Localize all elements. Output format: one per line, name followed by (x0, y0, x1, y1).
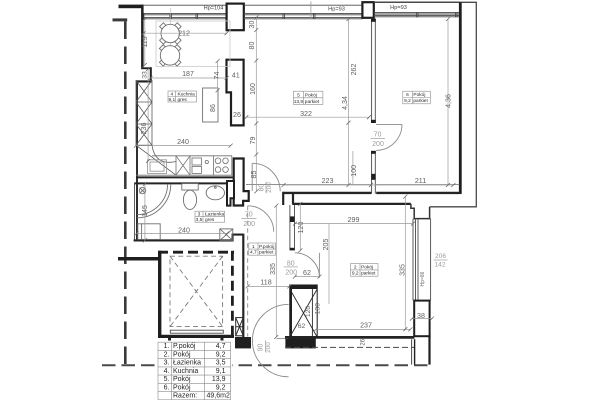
svg-text:5: 5 (297, 93, 300, 99)
svg-text:4: 4 (170, 91, 173, 97)
svg-text:85: 85 (250, 171, 258, 179)
svg-text:200: 200 (266, 182, 273, 193)
svg-text:236: 236 (140, 123, 148, 135)
svg-text:parkiet: parkiet (413, 98, 428, 104)
svg-text:Pokój: Pokój (173, 352, 191, 359)
svg-text:118: 118 (260, 279, 271, 287)
svg-text:240: 240 (178, 226, 190, 234)
svg-text:3,5: 3,5 (196, 217, 203, 223)
svg-text:70: 70 (245, 211, 253, 218)
svg-text:5.: 5. (164, 376, 170, 383)
svg-text:4,7: 4,7 (250, 250, 257, 256)
svg-text:Kuchnia: Kuchnia (173, 368, 198, 375)
svg-text:4,34: 4,34 (341, 96, 349, 110)
svg-text:322: 322 (300, 110, 312, 118)
svg-text:Hp=93: Hp=93 (328, 6, 345, 12)
svg-text:9,2: 9,2 (352, 271, 359, 277)
svg-text:Hp=93: Hp=93 (390, 5, 407, 11)
svg-text:13,9: 13,9 (294, 99, 304, 105)
svg-text:9,1: 9,1 (216, 368, 226, 375)
svg-text:335: 335 (269, 263, 277, 275)
svg-text:62: 62 (298, 323, 306, 330)
svg-text:212: 212 (178, 29, 190, 37)
svg-text:Hp=86: Hp=86 (420, 271, 426, 286)
svg-text:9,2: 9,2 (216, 384, 226, 391)
svg-text:gres: gres (178, 97, 188, 103)
svg-text:Pokój: Pokój (173, 384, 191, 391)
svg-text:299: 299 (348, 216, 360, 224)
svg-text:38: 38 (417, 312, 425, 320)
svg-text:3.: 3. (164, 360, 170, 367)
svg-text:86: 86 (208, 104, 217, 112)
svg-text:P.pokój: P.pokój (259, 244, 274, 250)
svg-text:187: 187 (182, 70, 194, 78)
svg-text:200: 200 (285, 269, 297, 276)
svg-text:49,6m2: 49,6m2 (207, 393, 230, 400)
svg-text:4,7: 4,7 (216, 343, 226, 350)
svg-text:Kuchnia: Kuchnia (178, 91, 196, 97)
svg-text:Pokój: Pokój (361, 265, 373, 271)
svg-text:Pokój: Pokój (413, 92, 425, 98)
svg-text:1: 1 (252, 244, 255, 250)
svg-text:70: 70 (374, 131, 382, 138)
svg-text:33: 33 (142, 71, 149, 79)
svg-text:parkiet: parkiet (305, 99, 320, 105)
svg-text:200: 200 (243, 221, 255, 228)
svg-text:41: 41 (232, 71, 240, 80)
svg-text:3: 3 (198, 212, 201, 218)
svg-text:13,9: 13,9 (212, 376, 226, 383)
svg-text:240: 240 (177, 138, 189, 146)
svg-text:2.: 2. (164, 352, 170, 359)
svg-text:Pokój: Pokój (305, 93, 317, 99)
svg-text:80: 80 (248, 42, 256, 50)
svg-text:205: 205 (322, 239, 330, 251)
svg-text:145: 145 (141, 205, 149, 217)
svg-text:Pokój: Pokój (173, 376, 191, 383)
svg-text:Razem:: Razem: (173, 393, 197, 400)
svg-text:79: 79 (249, 137, 257, 145)
svg-text:P.pokój: P.pokój (173, 343, 196, 350)
svg-text:142: 142 (434, 261, 445, 268)
svg-text:237: 237 (360, 322, 372, 330)
svg-text:Łazienka: Łazienka (205, 212, 225, 218)
svg-text:62: 62 (303, 269, 311, 277)
svg-text:262: 262 (350, 64, 358, 76)
svg-text:26: 26 (361, 338, 367, 345)
svg-text:2: 2 (354, 265, 357, 271)
svg-text:206: 206 (435, 253, 446, 260)
svg-text:120: 120 (297, 222, 305, 234)
svg-text:130: 130 (315, 303, 322, 315)
svg-text:1.: 1. (164, 343, 170, 350)
svg-text:4.: 4. (164, 368, 170, 375)
svg-text:100: 100 (350, 165, 358, 177)
svg-text:6: 6 (406, 92, 409, 98)
svg-text:80: 80 (287, 260, 295, 267)
svg-text:3,5: 3,5 (216, 360, 226, 367)
svg-text:200: 200 (265, 342, 272, 353)
svg-text:6.: 6. (164, 384, 170, 391)
svg-text:9,2: 9,2 (404, 98, 411, 104)
svg-text:211: 211 (415, 177, 426, 185)
svg-text:223: 223 (322, 177, 334, 185)
svg-text:200: 200 (372, 141, 384, 148)
svg-text:4,36: 4,36 (444, 94, 452, 108)
svg-text:Hp=104: Hp=104 (204, 6, 224, 12)
svg-text:parkiet: parkiet (259, 250, 274, 256)
svg-text:74: 74 (213, 72, 221, 80)
svg-text:90: 90 (258, 344, 265, 352)
svg-text:26: 26 (233, 110, 241, 119)
svg-text:30: 30 (248, 21, 256, 29)
svg-text:160: 160 (249, 83, 257, 95)
svg-text:335: 335 (398, 264, 406, 276)
svg-text:120: 120 (305, 306, 312, 318)
svg-text:parkiet: parkiet (361, 271, 376, 277)
svg-text:119: 119 (141, 36, 149, 47)
svg-text:9,2: 9,2 (216, 352, 226, 359)
svg-text:80: 80 (259, 184, 266, 192)
svg-text:9,1: 9,1 (168, 97, 175, 103)
svg-text:Łazienka: Łazienka (173, 360, 201, 367)
svg-text:gres: gres (205, 217, 215, 223)
